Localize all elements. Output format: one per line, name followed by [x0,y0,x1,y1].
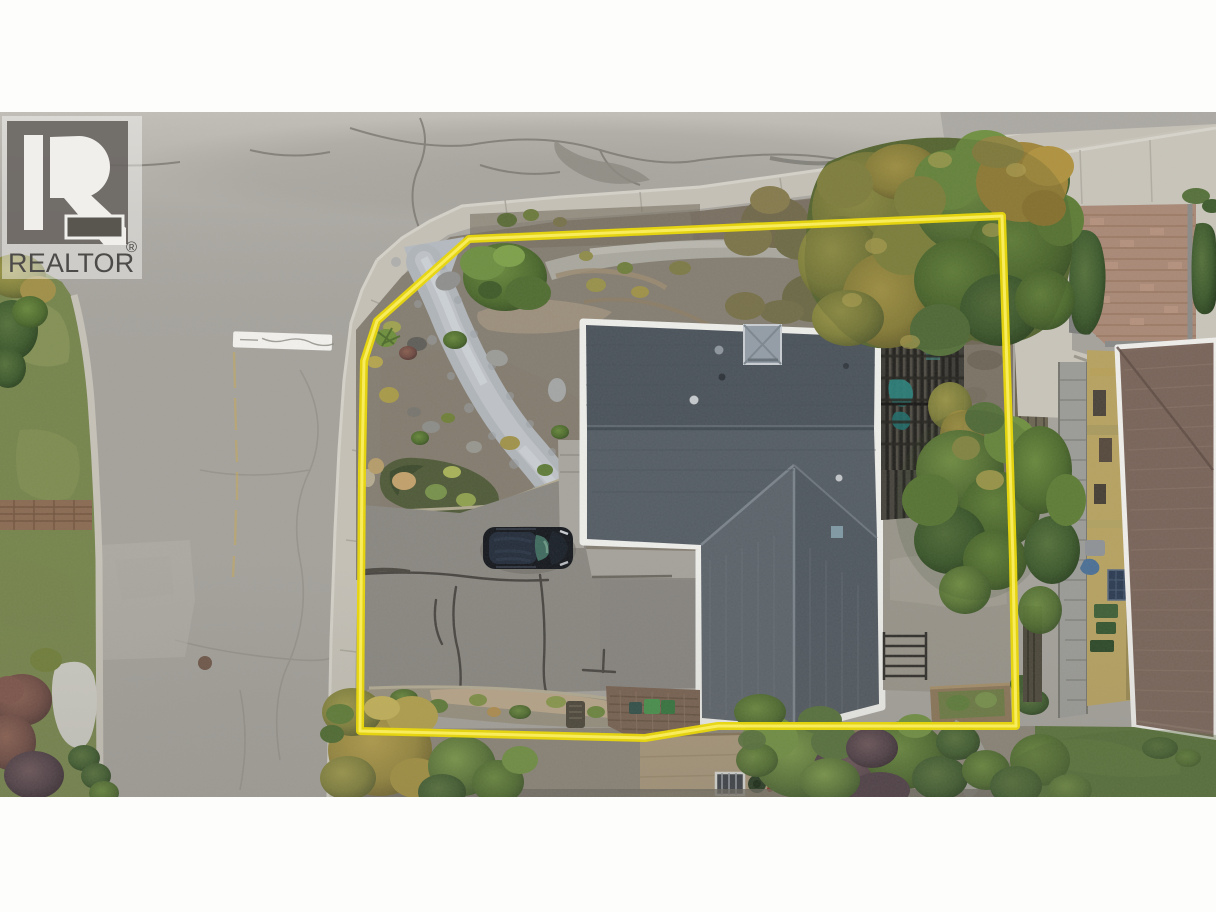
svg-text:REALTOR: REALTOR [8,248,134,278]
svg-text:®: ® [126,239,137,256]
